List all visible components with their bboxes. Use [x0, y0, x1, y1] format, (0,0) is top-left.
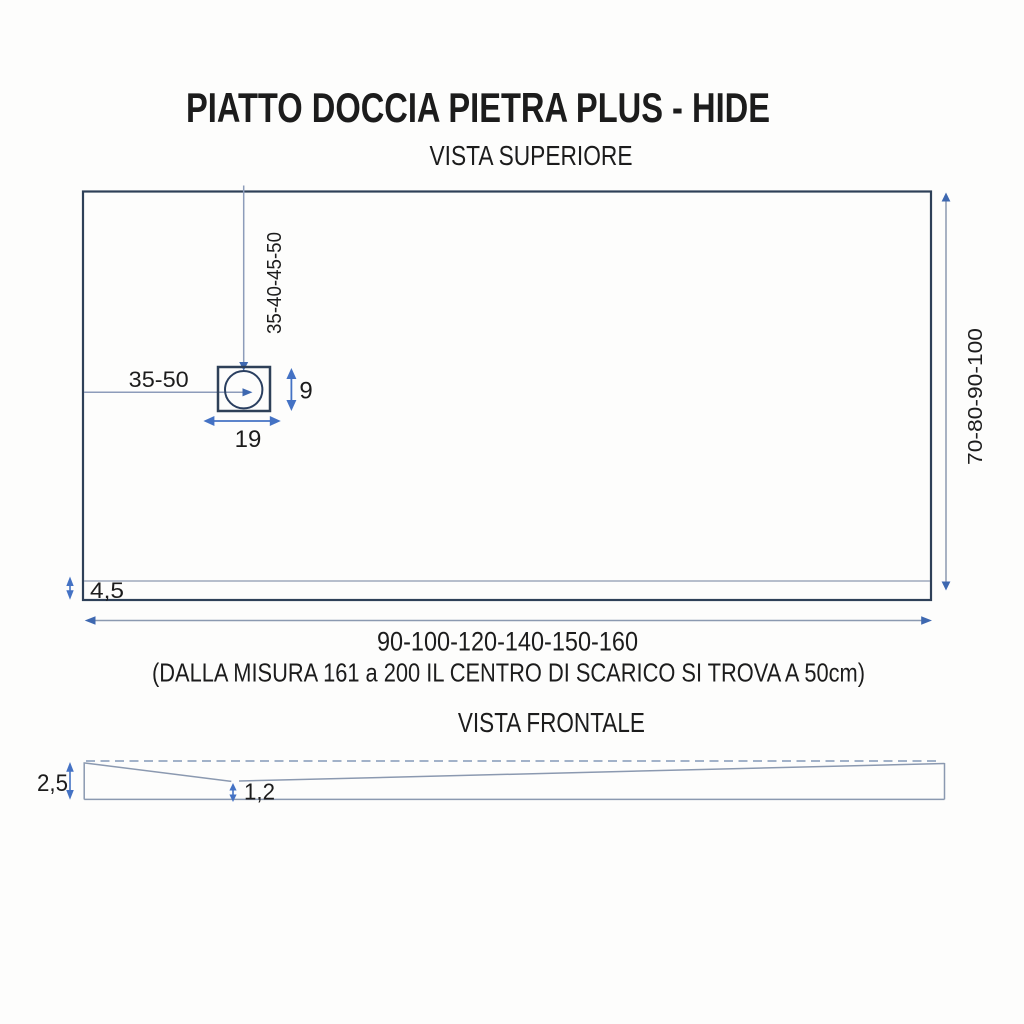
svg-text:1,2: 1,2 — [244, 779, 275, 805]
svg-text:9: 9 — [299, 378, 312, 405]
svg-text:90-100-120-140-150-160: 90-100-120-140-150-160 — [377, 627, 638, 657]
svg-text:2,5: 2,5 — [37, 770, 68, 797]
svg-text:PIATTO DOCCIA PIETRA PLUS - HI: PIATTO DOCCIA PIETRA PLUS - HIDE — [186, 84, 770, 131]
svg-text:VISTA FRONTALE: VISTA FRONTALE — [458, 707, 645, 738]
svg-text:(DALLA MISURA 161 a 200 IL CEN: (DALLA MISURA 161 a 200 IL CENTRO DI SCA… — [152, 657, 865, 687]
svg-text:35-50: 35-50 — [129, 367, 189, 392]
svg-text:19: 19 — [235, 426, 262, 453]
svg-text:70-80-90-100: 70-80-90-100 — [965, 328, 987, 465]
svg-text:4,5: 4,5 — [90, 578, 124, 603]
svg-text:VISTA SUPERIORE: VISTA SUPERIORE — [430, 140, 633, 171]
svg-text:35-40-45-50: 35-40-45-50 — [264, 232, 286, 334]
